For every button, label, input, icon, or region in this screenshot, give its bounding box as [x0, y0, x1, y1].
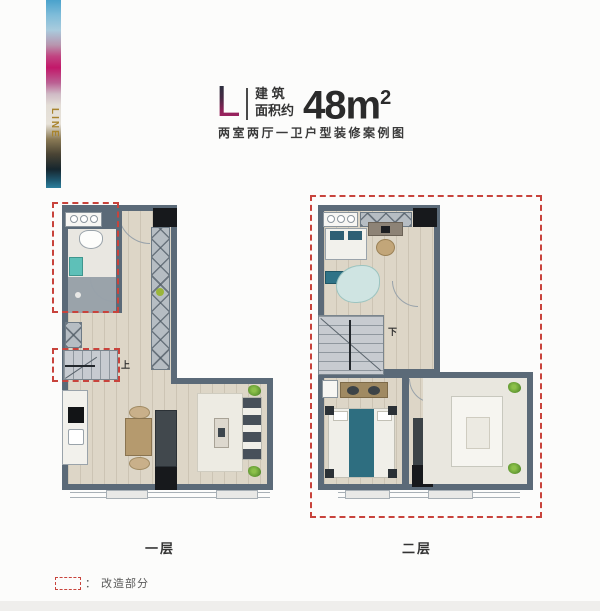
floor2-window-sill	[428, 490, 473, 499]
master-bed-pillow	[333, 411, 348, 421]
renovation-box-bathroom	[52, 202, 119, 313]
kitchen-sink	[68, 429, 84, 445]
floor2-label: 二层	[357, 538, 477, 557]
washer-unit-2	[323, 212, 358, 227]
fridge-cabinet	[155, 410, 177, 467]
closet	[322, 380, 338, 398]
renovation-box-stairs	[52, 348, 120, 382]
bottom-strip	[0, 601, 600, 611]
plant-icon	[508, 382, 521, 393]
unit-type-letter: L	[216, 82, 240, 122]
legend: ： 改造部分	[55, 575, 149, 591]
legend-label: 改造部分	[101, 575, 149, 591]
washer-knob-icon	[347, 215, 355, 223]
tv-cabinet	[413, 418, 423, 466]
nightstand	[325, 406, 334, 415]
area-labels: 建 筑 面积约	[255, 85, 294, 119]
dining-table	[125, 418, 152, 456]
area-label-line1: 建 筑	[255, 85, 294, 102]
floorplan-page: LINE L 建 筑 面积约 48m2 两室两厅一卫户型装修案例图	[0, 0, 600, 611]
sofa	[242, 397, 262, 460]
plan-subtitle: 两室两厅一卫户型装修案例图	[218, 124, 407, 141]
washer-knob-icon	[337, 215, 345, 223]
floor1-window-sill	[106, 490, 148, 499]
floor1-shaft-bottom	[155, 467, 177, 490]
area-value: 48m2	[303, 76, 390, 127]
title-divider	[246, 88, 248, 120]
second-bed	[451, 396, 503, 467]
guest-bed	[325, 228, 367, 260]
floor1-duct	[65, 322, 82, 348]
floor1-shaft	[153, 208, 177, 227]
kitchen-counter	[62, 390, 88, 465]
second-bed-throw	[466, 417, 490, 449]
floor2-stairs	[318, 315, 384, 375]
floor2-plan: 下	[310, 195, 542, 525]
guest-bed-pillow	[330, 231, 344, 240]
vanity-sink	[347, 386, 359, 395]
plant-icon	[248, 466, 261, 477]
area-label-line2: 面积约	[255, 102, 294, 119]
floor2-shaft-top	[413, 208, 437, 227]
plant-icon	[248, 385, 261, 396]
floor2-window-sill	[345, 490, 390, 499]
cabinet-plant	[156, 288, 164, 296]
nightstand	[388, 469, 397, 478]
stove	[68, 407, 84, 423]
master-bed	[328, 408, 395, 478]
dining-chair-bottom	[129, 457, 150, 470]
floor1-wall-cabinets	[151, 227, 170, 370]
area-number: 48m	[303, 83, 380, 127]
desk-chair	[376, 239, 395, 256]
bedroom-divider-wall	[402, 378, 409, 484]
floor2-stair-mark: 下	[388, 325, 397, 338]
nightstand	[388, 406, 397, 415]
brand-vertical-text: LINE	[48, 108, 60, 168]
guest-bed-pillow	[348, 231, 362, 240]
coffee-table-decor	[218, 428, 225, 437]
renovation-swatch-icon	[55, 577, 81, 590]
floor1-stair-mark: 上	[121, 358, 130, 371]
plant-icon	[508, 463, 521, 474]
vanity-counter	[340, 382, 388, 398]
desk	[368, 222, 403, 236]
laptop-icon	[381, 226, 390, 233]
floor1-plan: 上	[48, 196, 308, 526]
area-superscript: 2	[380, 87, 390, 109]
floor1-window-sill	[216, 490, 258, 499]
stair-arrow	[349, 320, 351, 370]
washer-knob-icon	[327, 215, 335, 223]
floor1-label: 一层	[100, 538, 220, 557]
legend-colon: ：	[85, 575, 97, 591]
vanity-sink	[368, 386, 380, 395]
nightstand	[325, 469, 334, 478]
master-bed-runner	[349, 409, 374, 477]
